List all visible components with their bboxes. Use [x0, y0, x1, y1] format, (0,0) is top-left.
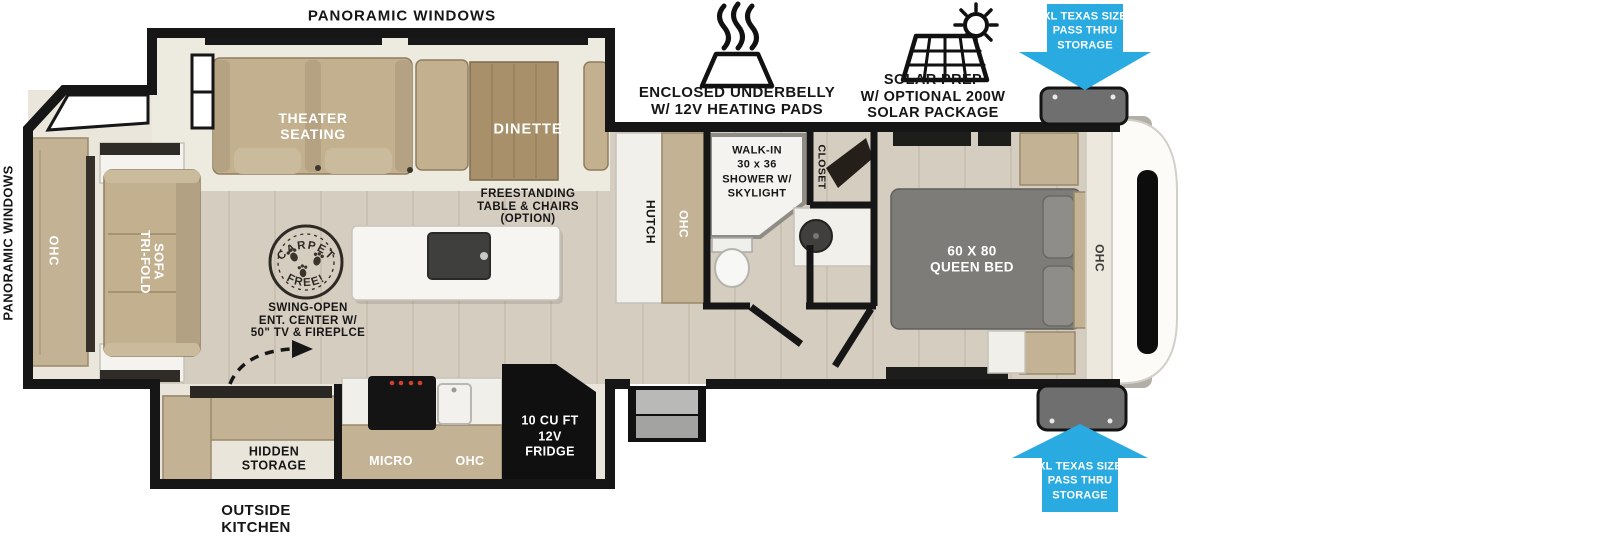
bedroom-dresser	[988, 331, 1025, 373]
pass-thru-door-top	[1041, 88, 1127, 124]
label-panoramic-windows-rear: PANORAMIC WINDOWS	[2, 165, 17, 320]
label-hutch: HUTCH	[644, 200, 657, 244]
front-window	[1137, 170, 1158, 354]
wardrobe-bottom	[1020, 332, 1075, 374]
floorplan-drawing: CARPET FREE!	[0, 0, 1600, 539]
label-dinette: DINETTE	[493, 122, 562, 139]
bedroom-window-top	[893, 131, 971, 146]
wardrobe-top	[1020, 133, 1078, 185]
rear-tv	[86, 156, 95, 352]
entry-steps	[628, 386, 706, 442]
label-freestanding-table: FREESTANDING TABLE & CHAIRS (OPTION)	[477, 188, 579, 226]
label-solar-feature: SOLAR PREP W/ OPTIONAL 200W SOLAR PACKAG…	[861, 72, 1006, 122]
swing-open-tv	[190, 386, 332, 398]
front-cap	[1112, 116, 1177, 388]
label-pass-thru-top: XL TEXAS SIZE PASS THRU STORAGE	[1043, 10, 1127, 53]
underbelly-icon	[702, 4, 772, 86]
solar-prep-icon	[903, 4, 997, 80]
label-pass-thru-bottom: XL TEXAS SIZE PASS THRU STORAGE	[1038, 460, 1122, 503]
floorplan-diagram: CARPET FREE!	[0, 0, 1600, 539]
label-tri-fold-sofa: TRI-FOLD SOFA	[138, 230, 165, 294]
toilet	[715, 249, 749, 287]
pillow	[1043, 196, 1074, 258]
label-outside-kitchen: OUTSIDE KITCHEN	[221, 502, 290, 537]
label-swing-open-ent: SWING-OPEN ENT. CENTER W/ 50" TV & FIREP…	[251, 302, 366, 340]
kitchen-island	[352, 226, 563, 304]
faucet	[480, 252, 488, 260]
pillow	[1043, 266, 1074, 326]
label-ohc-rear: OHC	[46, 236, 59, 267]
label-walk-in-shower: WALK-IN 30 x 36 SHOWER W/ SKYLIGHT	[722, 143, 792, 200]
pass-thru-door-bottom	[1038, 386, 1126, 430]
hutch-cabinet	[616, 133, 704, 303]
label-micro: MICRO	[369, 454, 413, 468]
label-hidden-storage: HIDDEN STORAGE	[242, 445, 306, 474]
label-ohc-bedroom: OHC	[1093, 244, 1106, 272]
label-underbelly-feature: ENCLOSED UNDERBELLY W/ 12V HEATING PADS	[639, 84, 835, 119]
label-ohc-kitchen: OHC	[456, 454, 485, 468]
label-fridge: 10 CU FT 12V FRIDGE	[521, 414, 578, 461]
label-queen-bed: 60 X 80 QUEEN BED	[930, 243, 1014, 274]
label-theater-seating: THEATER SEATING	[278, 110, 347, 142]
label-panoramic-windows-top: PANORAMIC WINDOWS	[308, 7, 496, 24]
label-closet: CLOSET	[815, 145, 826, 190]
label-ohc-hutch: OHC	[677, 210, 690, 238]
